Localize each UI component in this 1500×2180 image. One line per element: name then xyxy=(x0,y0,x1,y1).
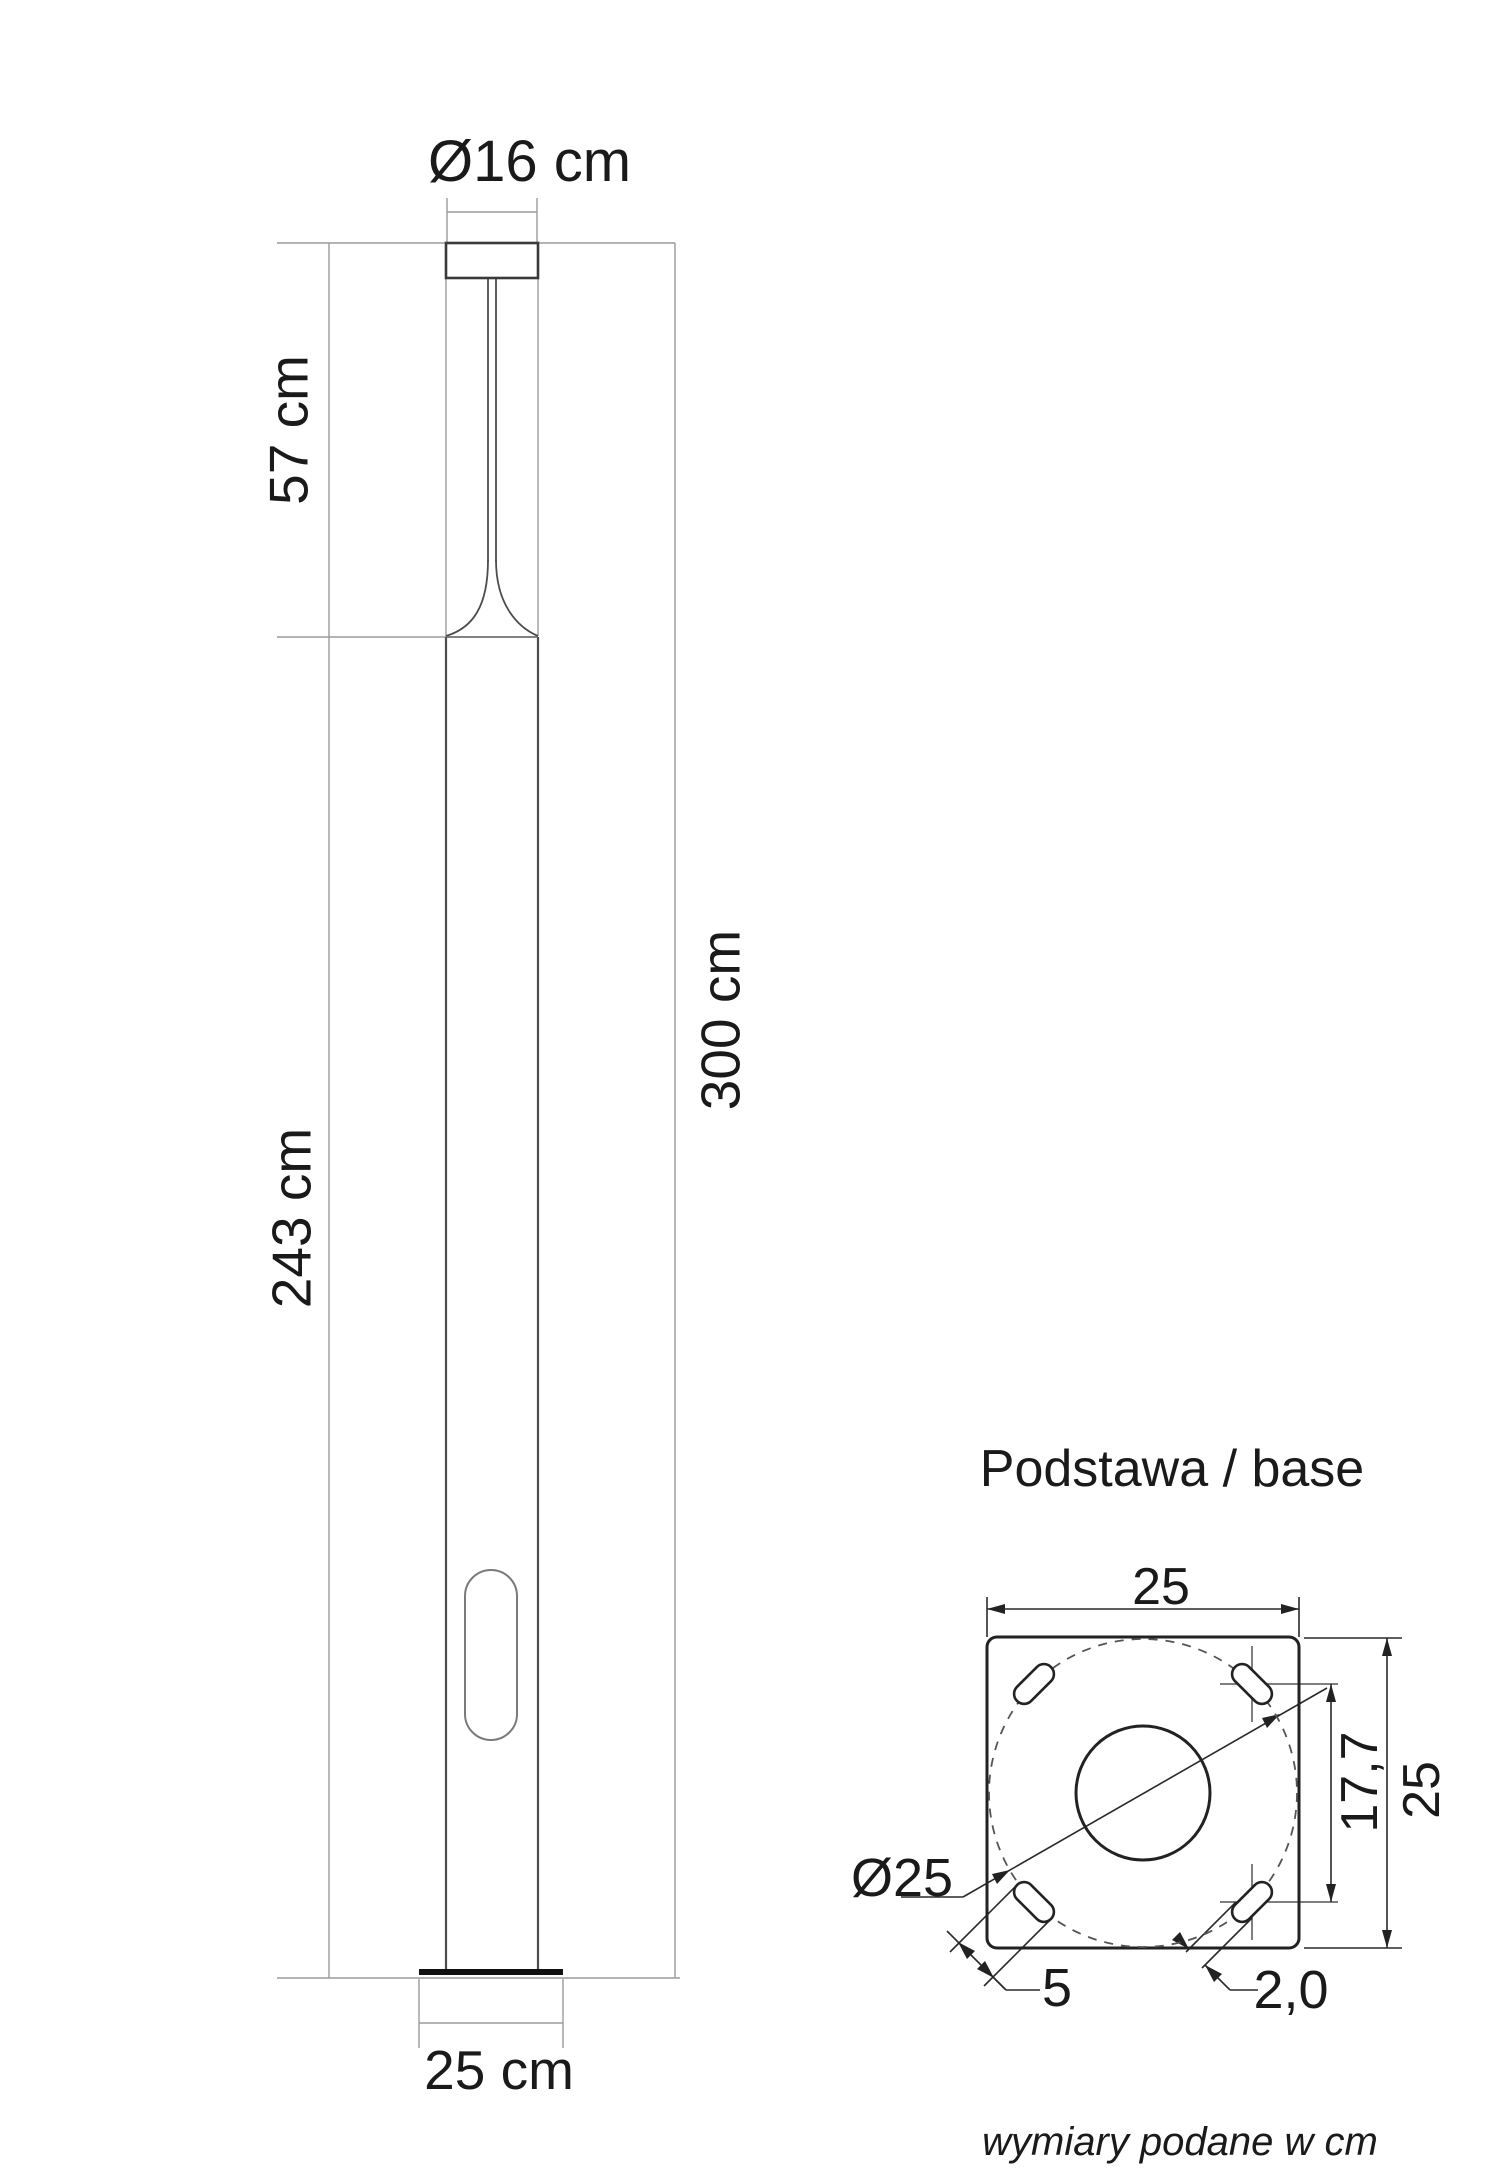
arrow-plate-height-top xyxy=(1382,1638,1392,1656)
arrow-bolt-spacing-bottom xyxy=(1326,1884,1336,1902)
lamp-cap xyxy=(446,243,538,278)
arrow-plate-height-bottom xyxy=(1382,1930,1392,1948)
arrow-bolt-circle-sw xyxy=(992,1870,1010,1884)
slot-length-ext-1 xyxy=(950,1885,1017,1952)
base-plate-top-view xyxy=(987,1637,1299,1948)
slot-width-ext-1 xyxy=(1186,1902,1236,1952)
bolt-circle-diameter-label: Ø25 xyxy=(851,1848,953,1908)
plate-height-label: 25 xyxy=(1393,1761,1451,1819)
cap-diameter-label: Ø16 cm xyxy=(428,129,631,194)
arrow-plate-width-right xyxy=(1281,1604,1299,1614)
flare-right-curve xyxy=(496,560,538,636)
base-width-label: 25 cm xyxy=(424,2039,574,2101)
bolt-slot-nw xyxy=(1010,1660,1058,1708)
bolt-slot-sw xyxy=(1010,1878,1058,1926)
total-height-label: 300 cm xyxy=(689,930,751,1110)
arrow-slot-width-nw xyxy=(1172,1932,1189,1949)
slot-width-ext-2 xyxy=(1202,1918,1252,1968)
arrow-plate-width-left xyxy=(987,1604,1005,1614)
slot-width-label: 2,0 xyxy=(1253,1960,1328,2020)
base-detail-dimension-lines xyxy=(901,1597,1402,1990)
lower-section-height-label: 243 cm xyxy=(260,1128,322,1308)
units-note: wymiary podane w cm xyxy=(982,2120,1378,2164)
dimension-arrowheads xyxy=(958,1604,1392,1982)
slot-length-leader-elbow xyxy=(994,1978,1006,1990)
plate-width-label: 25 xyxy=(1132,1558,1190,1616)
base-detail-view: Podstawa / base xyxy=(851,1440,1451,2020)
arrow-bolt-spacing-top xyxy=(1326,1684,1336,1702)
pole-elevation-view: Ø16 cm 57 cm 243 cm 300 cm 25 cm xyxy=(257,129,751,2101)
base-detail-title: Podstawa / base xyxy=(980,1440,1364,1498)
pole-object xyxy=(419,243,563,1975)
access-door-slot xyxy=(465,1570,517,1740)
elevation-dimension-lines xyxy=(277,198,680,2048)
base-detail-centerlines xyxy=(1220,1646,1338,1940)
lamp-post-technical-drawing: Ø16 cm 57 cm 243 cm 300 cm 25 cm Podstaw… xyxy=(0,0,1500,2180)
bolt-spacing-label: 17,7 xyxy=(1331,1731,1389,1832)
upper-section-height-label: 57 cm xyxy=(257,355,319,505)
slot-length-ext-2 xyxy=(984,1919,1051,1986)
flare-left-curve xyxy=(446,560,488,636)
slot-length-label: 5 xyxy=(1042,1958,1072,2018)
base-plate-edge xyxy=(419,1969,563,1975)
technical-drawing-page: Ø16 cm 57 cm 243 cm 300 cm 25 cm Podstaw… xyxy=(0,0,1500,2180)
